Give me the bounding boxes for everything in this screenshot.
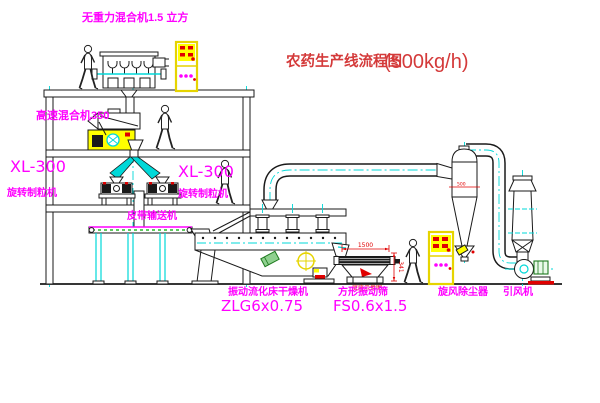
exhaust-elbow-duct bbox=[262, 170, 437, 210]
label-fan: 引风机 bbox=[503, 285, 533, 298]
fluid-bed-dryer bbox=[191, 204, 346, 284]
control-cabinet-ground bbox=[429, 232, 453, 284]
dim-1500: 1500 bbox=[358, 242, 373, 249]
label-dryer-model: ZLG6x0.75 bbox=[221, 297, 303, 315]
label-xl300-right: XL-300 bbox=[178, 162, 234, 181]
label-granulator-right: 旋转制粒机 bbox=[177, 187, 228, 200]
granulator-right bbox=[145, 177, 181, 205]
gravity-free-mixer bbox=[92, 52, 169, 113]
label-belt-conveyor: 皮带输送机 bbox=[126, 209, 177, 222]
label-xl300-left: XL-300 bbox=[10, 157, 66, 176]
granulator-left bbox=[99, 177, 135, 205]
dimension-length: 1500 bbox=[342, 242, 389, 252]
label-high-speed-mixer: 高速混合机350 bbox=[36, 108, 109, 122]
diagram-capacity: (500kg/h) bbox=[384, 51, 469, 73]
label-granulator-left: 旋转制粒机 bbox=[6, 186, 57, 199]
diagram-canvas: 1500 341 底座示意图 500 bbox=[0, 0, 600, 403]
belt-conveyor bbox=[89, 227, 192, 284]
cyclone-mark: 500 bbox=[457, 182, 466, 188]
label-cyclone: 旋风除尘器 bbox=[437, 285, 489, 298]
label-gravity-mixer: 无重力混合机1.5 立方 bbox=[81, 10, 188, 24]
control-cabinet-roof bbox=[176, 42, 197, 91]
indicator-dots bbox=[179, 74, 183, 78]
label-sieve-model: FS0.6x1.5 bbox=[333, 297, 407, 315]
conveyor-legs bbox=[93, 233, 168, 284]
dim-341: 341 bbox=[397, 261, 404, 273]
person-ground bbox=[405, 239, 424, 282]
person-floor3 bbox=[157, 105, 176, 148]
person-roof bbox=[80, 45, 99, 88]
feed-chute bbox=[110, 157, 160, 179]
